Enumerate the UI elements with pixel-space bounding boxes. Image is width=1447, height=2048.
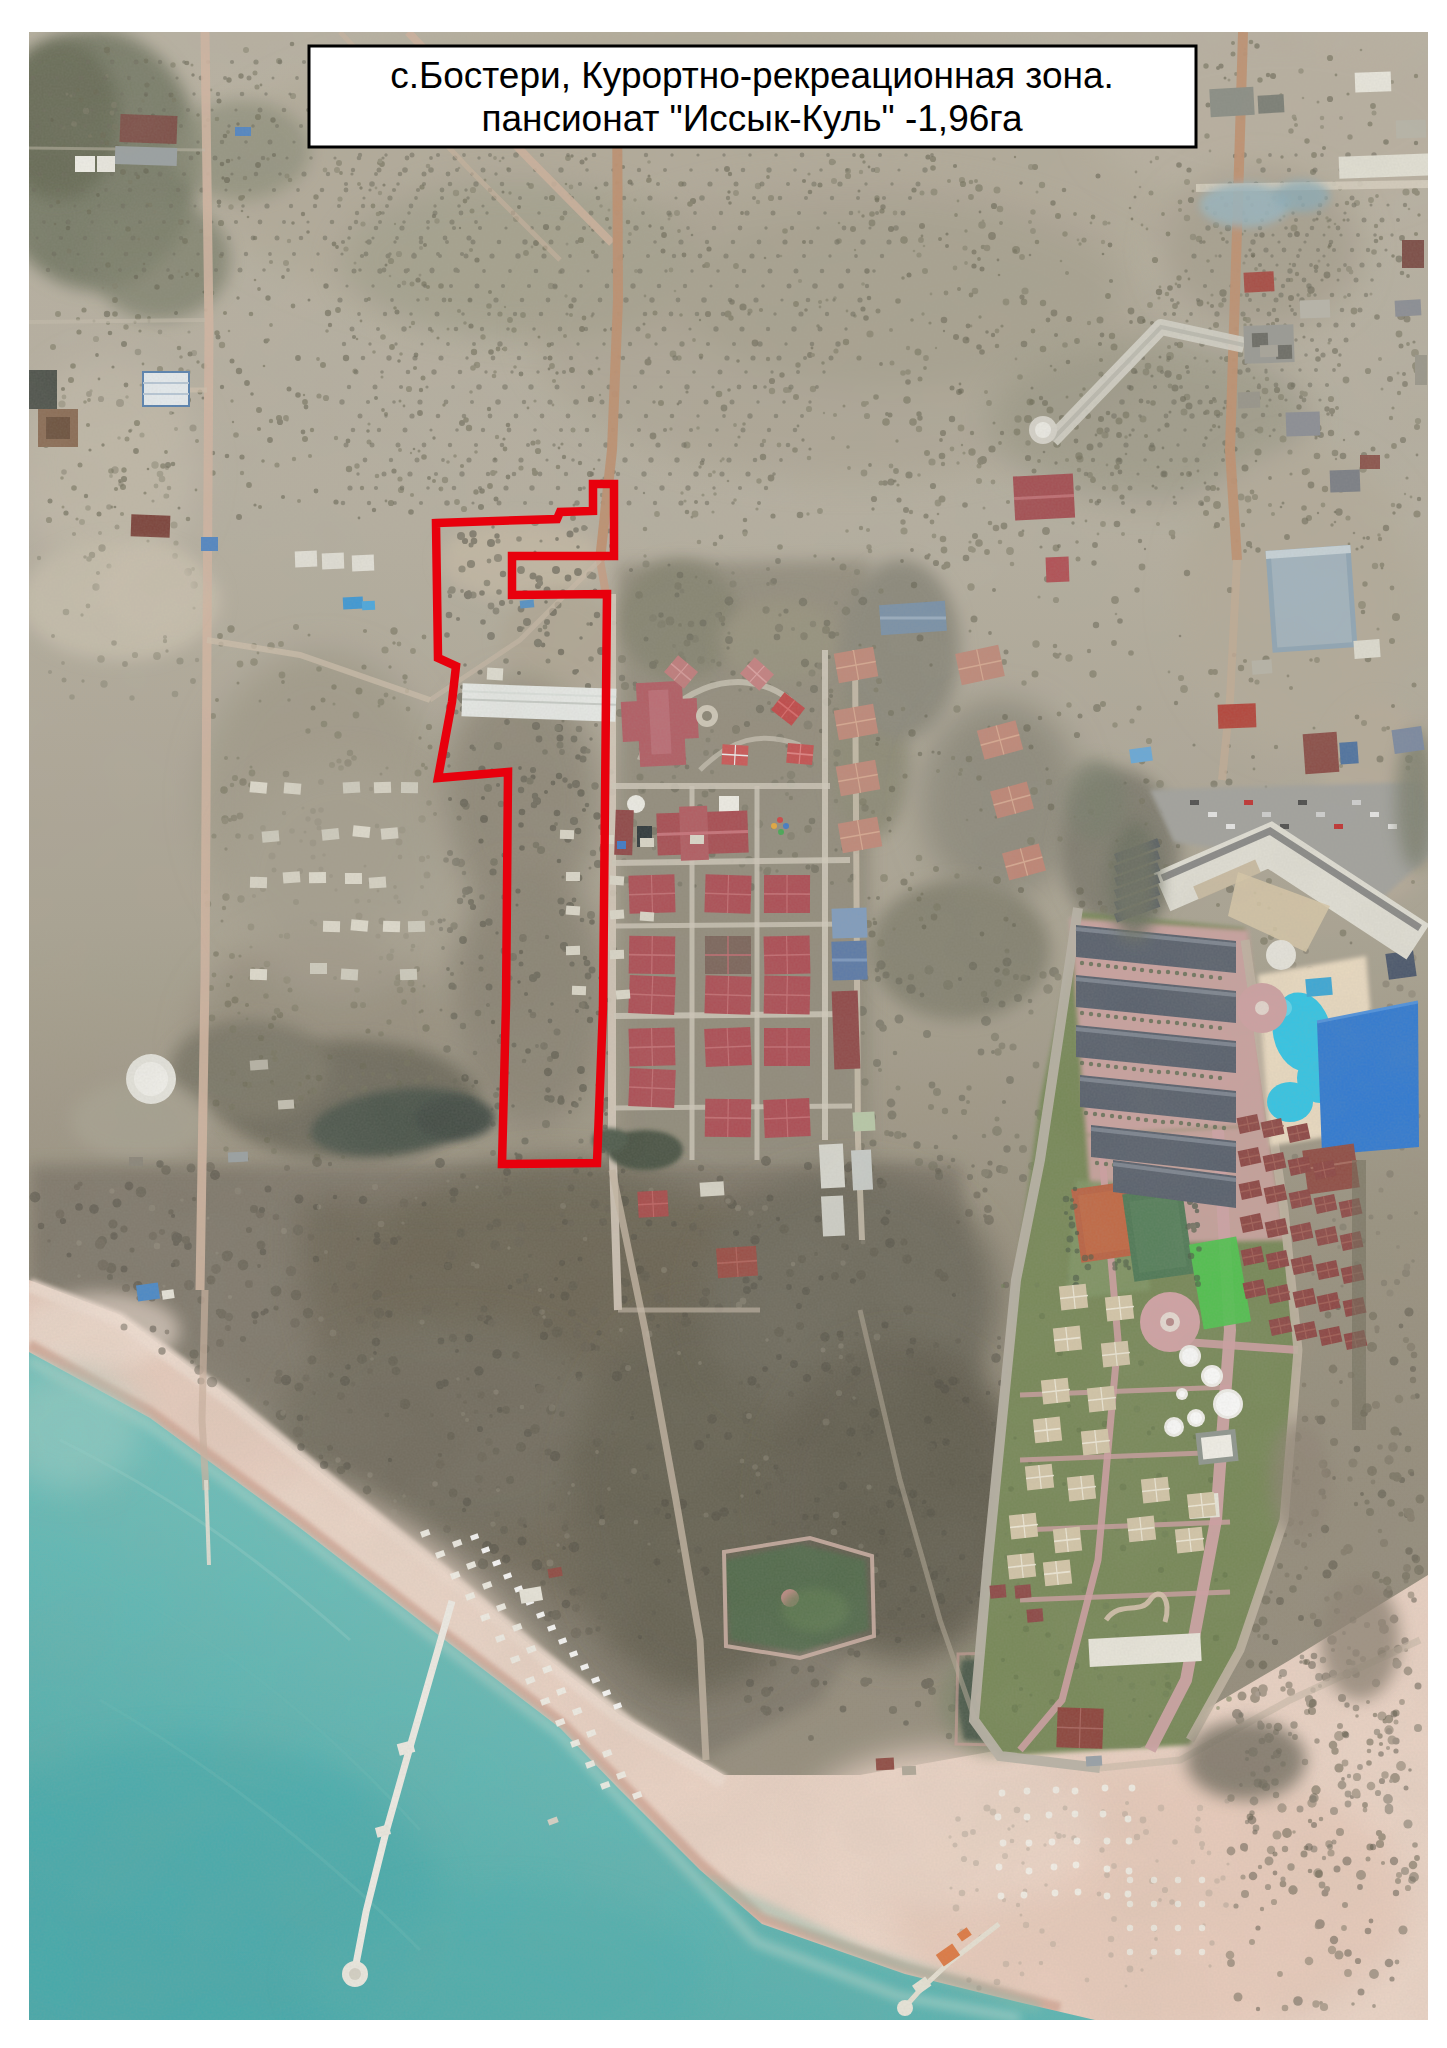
svg-text:с.Бостери, Курортно-рекреацион: с.Бостери, Курортно-рекреационная зона.: [390, 55, 1114, 96]
svg-text:пансионат "Иссык-Куль" -1,96га: пансионат "Иссык-Куль" -1,96га: [481, 98, 1023, 139]
